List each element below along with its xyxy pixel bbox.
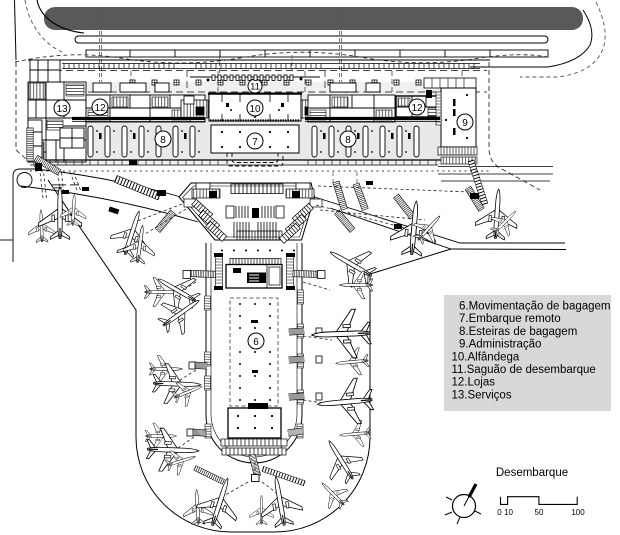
svg-text:10.Alfândega: 10.Alfândega (452, 351, 520, 363)
svg-text:12: 12 (94, 103, 106, 114)
svg-text:6: 6 (253, 337, 259, 348)
svg-text:8: 8 (160, 135, 166, 146)
svg-text:11: 11 (250, 82, 260, 93)
svg-text:0: 0 (497, 508, 502, 517)
svg-text:50: 50 (535, 508, 544, 517)
svg-text:10: 10 (504, 508, 513, 517)
svg-text:11.Saguão de desembarque: 11.Saguão de desembarque (452, 364, 596, 376)
svg-text:7.Embarque remoto: 7.Embarque remoto (459, 313, 561, 325)
svg-text:9: 9 (462, 118, 468, 129)
svg-text:Desembarque: Desembarque (496, 467, 568, 479)
svg-text:10: 10 (249, 104, 261, 115)
svg-text:8: 8 (345, 135, 351, 146)
svg-text:9.Administração: 9.Administração (459, 339, 541, 351)
svg-text:8.Esteiras de bagagem: 8.Esteiras de bagagem (459, 326, 577, 338)
svg-text:6.Movimentação de bagagem: 6.Movimentação de bagagem (459, 301, 611, 313)
svg-text:7: 7 (252, 137, 258, 148)
svg-text:13: 13 (56, 104, 68, 115)
svg-text:12.Lojas: 12.Lojas (452, 377, 496, 389)
svg-text:12: 12 (411, 103, 423, 114)
svg-text:100: 100 (571, 508, 585, 517)
svg-text:13.Serviços: 13.Serviços (452, 389, 512, 401)
